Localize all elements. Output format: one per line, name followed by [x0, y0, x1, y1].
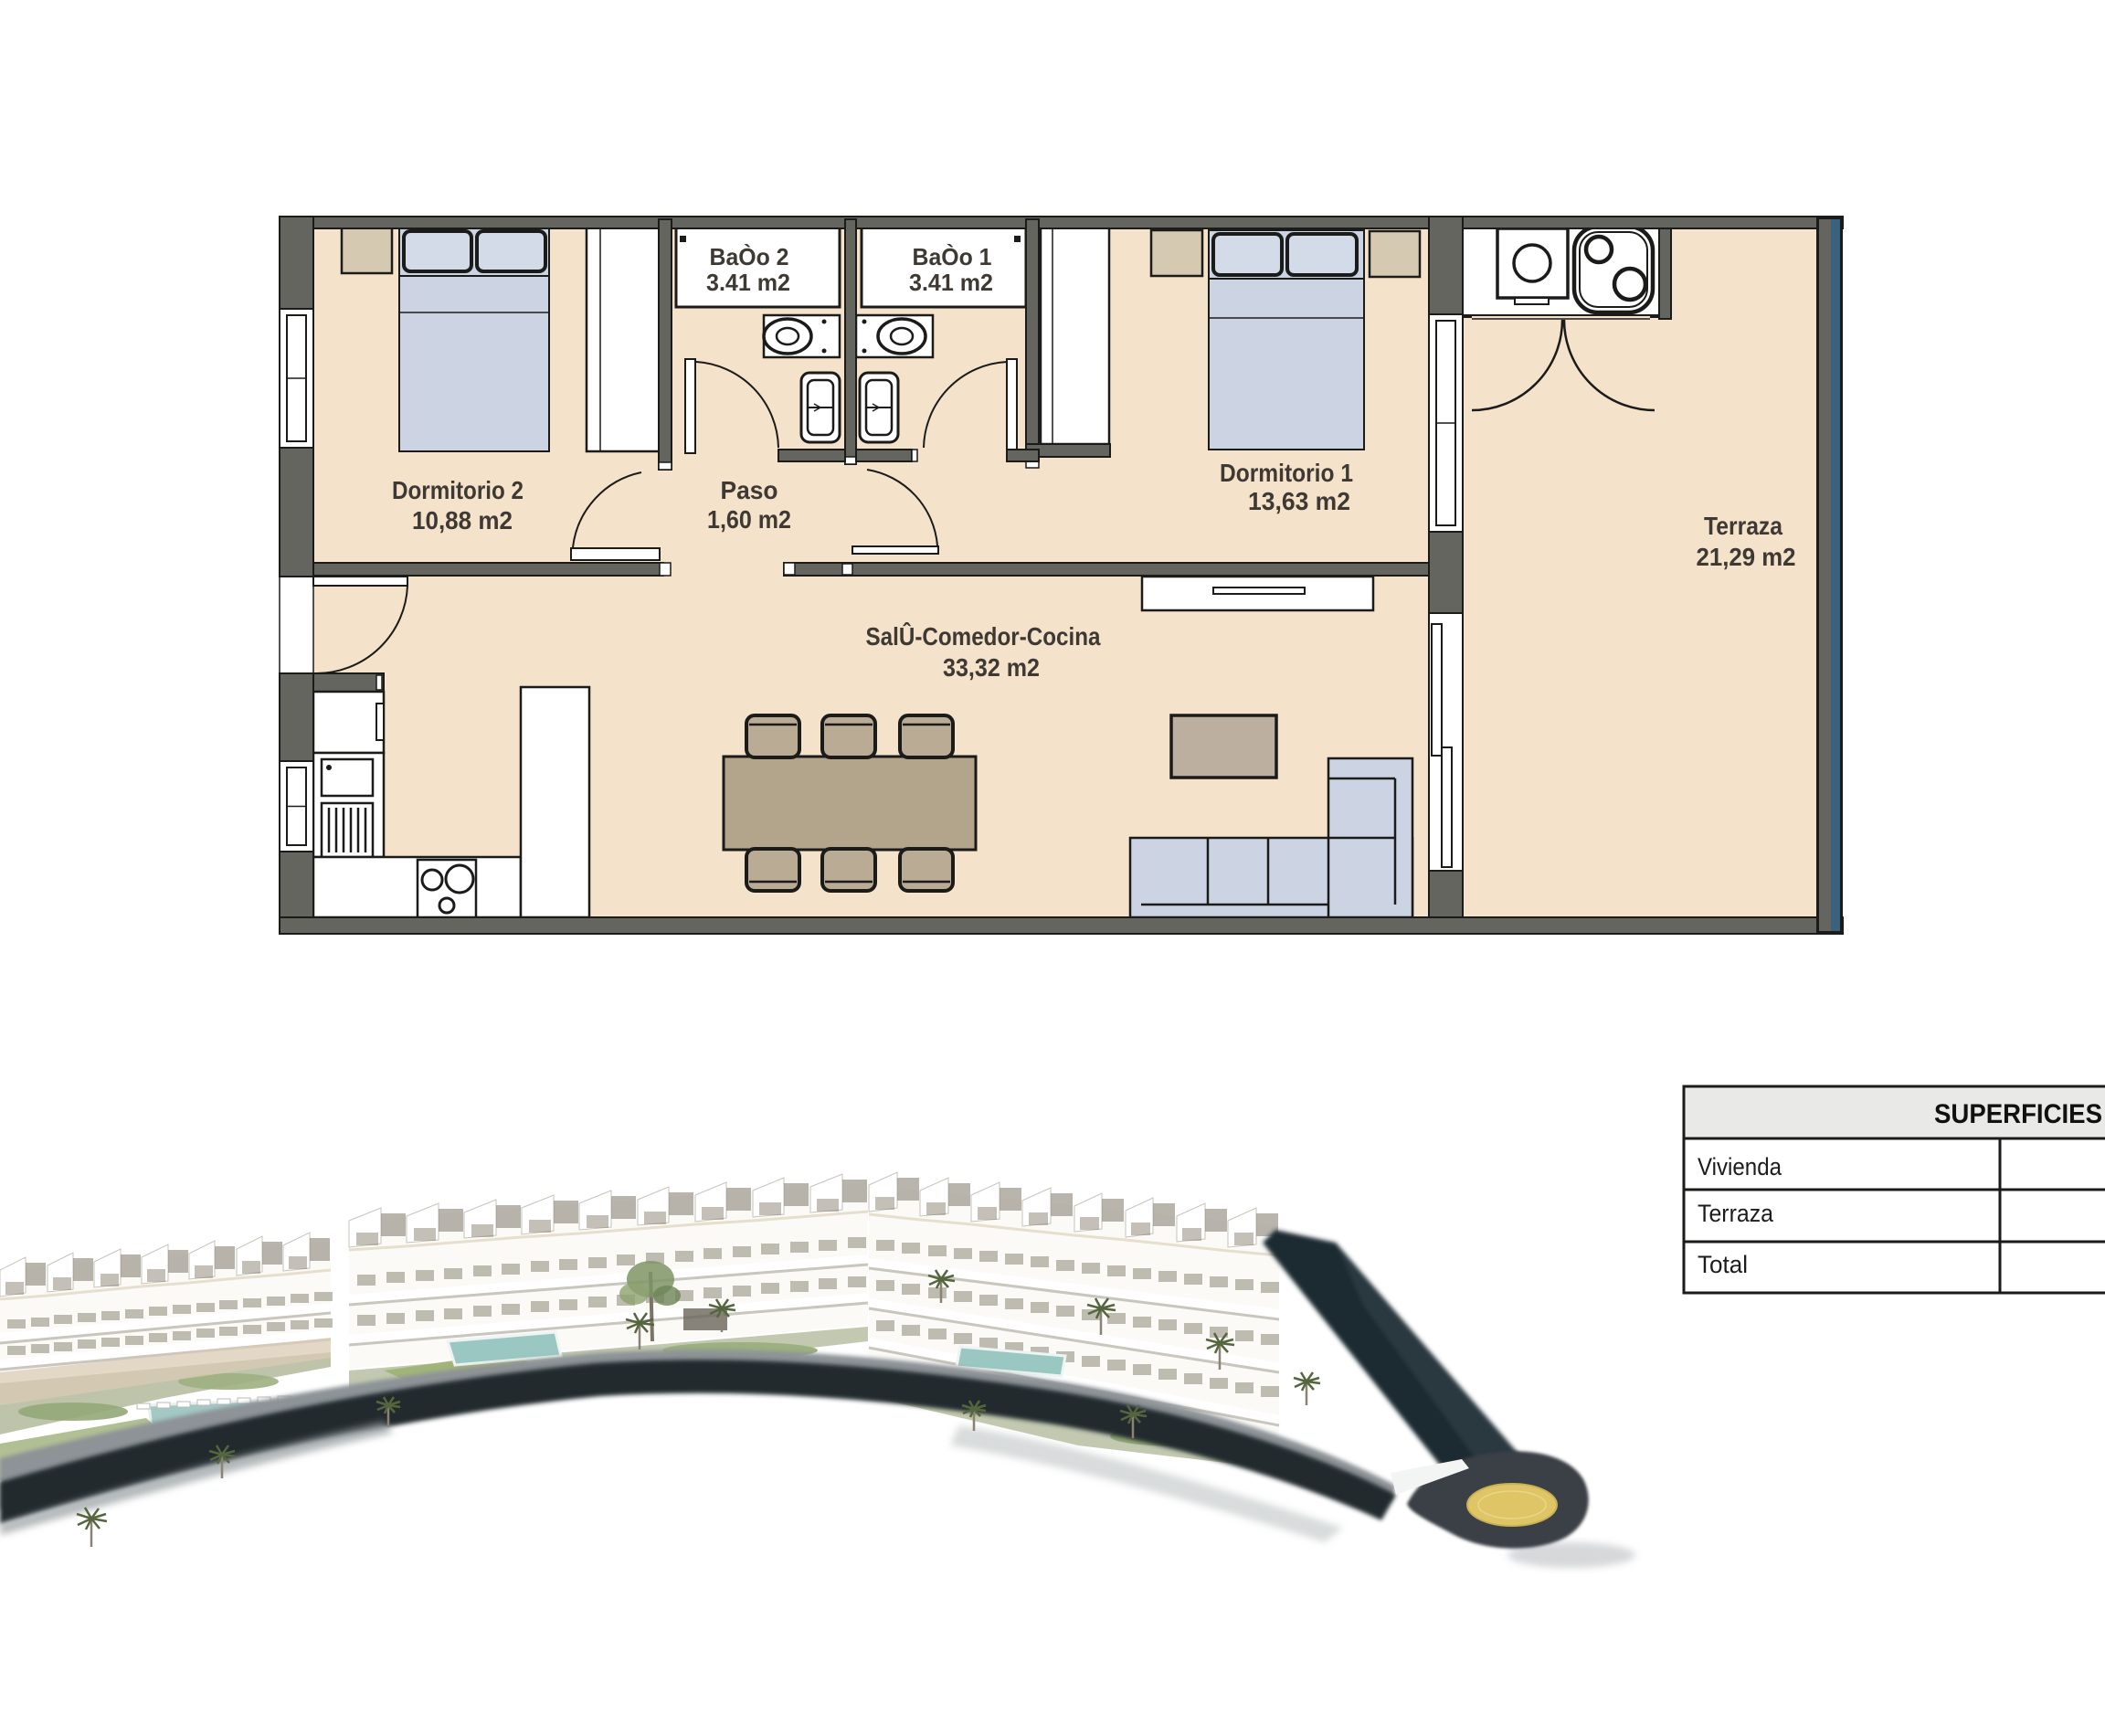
svg-text:Vivienda: Vivienda — [1698, 1153, 1782, 1180]
svg-text:BaÒo 2: BaÒo 2 — [710, 243, 789, 270]
svg-text:Terraza: Terraza — [1704, 512, 1782, 540]
svg-text:Total: Total — [1698, 1251, 1748, 1278]
svg-text:Dormitorio 1: Dormitorio 1 — [1220, 459, 1353, 487]
svg-text:Paso: Paso — [721, 476, 778, 504]
svg-text:Dormitorio 2: Dormitorio 2 — [392, 476, 524, 504]
svg-text:1,60 m2: 1,60 m2 — [707, 505, 791, 534]
svg-text:10,88 m2: 10,88 m2 — [412, 506, 513, 535]
svg-text:33,32 m2: 33,32 m2 — [943, 653, 1040, 682]
svg-text:SalÛ-Comedor-Cocina: SalÛ-Comedor-Cocina — [866, 621, 1101, 651]
svg-text:3.41 m2: 3.41 m2 — [706, 269, 790, 296]
svg-text:3.41 m2: 3.41 m2 — [909, 269, 993, 296]
svg-text:SUPERFICIES: SUPERFICIES — [1934, 1099, 2102, 1129]
svg-text:BaÒo 1: BaÒo 1 — [913, 243, 992, 270]
svg-text:Terraza: Terraza — [1698, 1200, 1774, 1227]
svg-text:13,63 m2: 13,63 m2 — [1248, 487, 1350, 515]
svg-text:21,29 m2: 21,29 m2 — [1697, 543, 1796, 571]
